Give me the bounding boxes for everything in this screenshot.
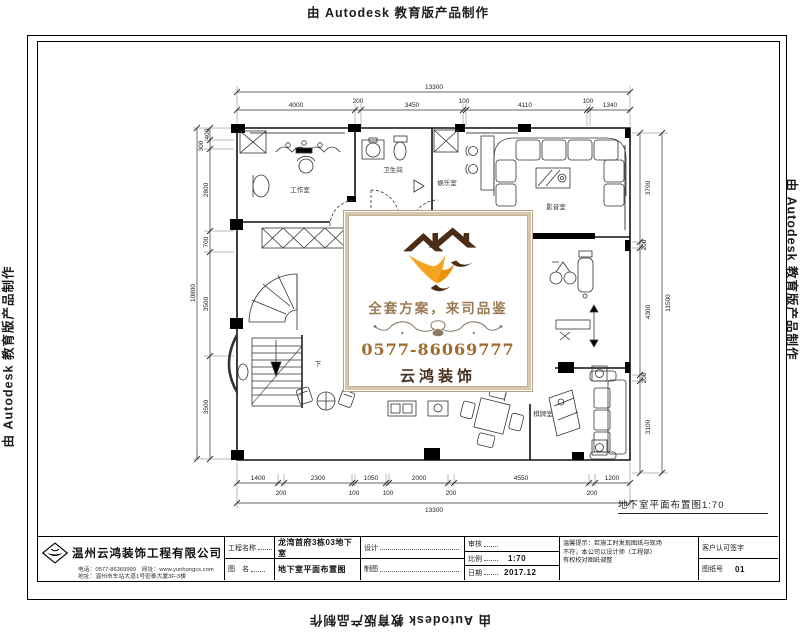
stairs bbox=[252, 338, 302, 406]
title-block-design-cell: 设计 制图 bbox=[361, 537, 465, 580]
dim-bottom-seg: 1200 bbox=[605, 475, 620, 482]
sign-label: 客户认可签字 bbox=[702, 543, 744, 553]
room-label-bathroom: 卫生间 bbox=[383, 165, 403, 174]
dim-top-seg: 100 bbox=[459, 98, 470, 105]
gym-equipment bbox=[550, 251, 598, 347]
dim-right-seg: 4300 bbox=[645, 304, 652, 319]
dim-top-overall: 13300 bbox=[425, 84, 443, 91]
closet-hatch-mid bbox=[434, 130, 458, 152]
dim-left-seg: 2800 bbox=[203, 182, 210, 197]
watermark-slogan: 全套方案，来司品鉴 bbox=[368, 297, 508, 317]
stair-direction-label: 下 bbox=[315, 360, 322, 368]
closet-row bbox=[262, 228, 346, 248]
dim-right-seg: 3700 bbox=[645, 180, 652, 195]
project-value: 龙湾首府3栋03地下室 bbox=[278, 537, 357, 559]
title-block-field-labels: 工程名称 图 名 bbox=[225, 537, 275, 580]
draft-label: 制图 bbox=[364, 564, 378, 574]
dim-top-seg: 200 bbox=[353, 98, 364, 105]
dim-bottom-seg2: 100 bbox=[349, 490, 360, 497]
title-block: 温州云鸿装饰工程有限公司 电话：0577-86369999 网址：www.yun… bbox=[38, 536, 778, 580]
autodesk-stamp-bottom: 由 Autodesk 教育版产品制作 bbox=[250, 612, 550, 631]
dim-bottom-seg: 1050 bbox=[364, 475, 379, 482]
watermark-card: 全套方案，来司品鉴 0577-86069777 云鸿装饰 bbox=[343, 210, 533, 392]
dim-bottom-seg2: 200 bbox=[446, 490, 457, 497]
plan-caption: 地下室平面布置图1:70 bbox=[618, 497, 768, 514]
laundry-counter bbox=[388, 401, 448, 416]
company-logo-icon bbox=[42, 539, 68, 567]
sheet-value: 01 bbox=[735, 565, 745, 574]
dim-top-seg: 3450 bbox=[405, 102, 420, 109]
dim-left-seg: 300 bbox=[198, 140, 205, 151]
title-block-audit-cell: 审核 比例1:70 日期2017.12 bbox=[465, 537, 560, 580]
title-block-notice-cell: 温馨提示：若施工时发现图纸与现场 不符，本公司以设计师（工程部） 有权校对图纸调… bbox=[560, 537, 699, 580]
sofa-sectional bbox=[494, 138, 626, 206]
dim-bottom-seg2: 100 bbox=[383, 490, 394, 497]
closet-hatch-topleft bbox=[240, 131, 266, 153]
room-label-workroom: 工作室 bbox=[290, 185, 310, 194]
sheet-label: 图纸号 bbox=[702, 564, 723, 574]
yunhong-logo-icon bbox=[392, 222, 484, 295]
scale-value: 1:70 bbox=[508, 554, 526, 563]
dim-right-seg: 3100 bbox=[645, 419, 652, 434]
dim-left-seg: 3500 bbox=[203, 399, 210, 414]
dim-top-seg: 4110 bbox=[518, 102, 532, 109]
dim-bottom-seg: 1400 bbox=[251, 475, 266, 482]
dim-bottom-seg: 4550 bbox=[514, 475, 529, 482]
chess-room-sofa bbox=[590, 371, 626, 459]
spiral-stairs bbox=[249, 274, 297, 330]
drawing-label: 图 名 bbox=[228, 564, 249, 574]
notice-line1: 温馨提示：若施工时发现图纸与现场 bbox=[563, 540, 695, 549]
design-label: 设计 bbox=[364, 543, 378, 553]
dim-bottom-seg2: 200 bbox=[276, 490, 287, 497]
dim-left-overall: 10800 bbox=[190, 284, 197, 302]
dim-right-seg: 200 bbox=[641, 372, 648, 383]
room-label-chess: 棋牌室 bbox=[533, 409, 553, 418]
dim-top-seg: 4000 bbox=[289, 102, 304, 109]
notice-line2: 不符，本公司以设计师（工程部） bbox=[563, 549, 695, 558]
autodesk-stamp-left: 由 Autodesk 教育版产品制作 bbox=[0, 207, 17, 507]
notice-line3: 有权校对图纸调整 bbox=[563, 557, 695, 566]
coffee-table bbox=[536, 168, 570, 188]
dim-bottom-overall: 13300 bbox=[425, 507, 443, 514]
dim-right-seg: 200 bbox=[641, 239, 648, 250]
title-block-sign-cell: 客户认可签字 图纸号01 bbox=[699, 537, 778, 580]
dim-bottom-seg: 2300 bbox=[311, 475, 326, 482]
watermark-phone: 0577-86069777 bbox=[361, 340, 514, 359]
scale-label: 比例 bbox=[468, 554, 482, 564]
dim-left-seg: 3500 bbox=[203, 296, 210, 311]
date-label: 日期 bbox=[468, 568, 482, 578]
room-label-media: 影音室 bbox=[546, 202, 566, 211]
title-block-field-values: 龙湾首府3栋03地下室 地下室平面布置图 bbox=[275, 537, 361, 580]
audit-label: 审核 bbox=[468, 539, 482, 549]
dim-left-seg: 400 bbox=[204, 128, 211, 139]
dim-top-seg: 100 bbox=[583, 98, 594, 105]
company-contact-line2: 地址：温州市车站大道1号密泰大厦3F-3楼 bbox=[38, 574, 224, 581]
dim-left-seg: 700 bbox=[203, 236, 210, 247]
ornament-divider-icon bbox=[368, 317, 508, 338]
project-label: 工程名称 bbox=[228, 543, 256, 553]
bay-wall bbox=[229, 335, 248, 392]
dim-right-overall: 11500 bbox=[665, 294, 672, 312]
dim-bottom-seg2: 200 bbox=[587, 490, 598, 497]
company-name: 温州云鸿装饰工程有限公司 bbox=[72, 545, 222, 561]
date-value: 2017.12 bbox=[504, 568, 536, 577]
title-block-company-cell: 温州云鸿装饰工程有限公司 电话：0577-86369999 网址：www.yun… bbox=[38, 537, 225, 580]
rug bbox=[549, 390, 580, 436]
dim-top-seg: 1340 bbox=[603, 102, 618, 109]
dim-bottom-seg: 2000 bbox=[412, 475, 427, 482]
autodesk-stamp-top: 由 Autodesk 教育版产品制作 bbox=[248, 2, 548, 21]
room-label-recreation: 娱乐室 bbox=[437, 178, 457, 187]
drawing-value: 地下室平面布置图 bbox=[278, 564, 346, 575]
bar-counter bbox=[466, 136, 494, 190]
watermark-brand: 云鸿装饰 bbox=[400, 365, 476, 386]
